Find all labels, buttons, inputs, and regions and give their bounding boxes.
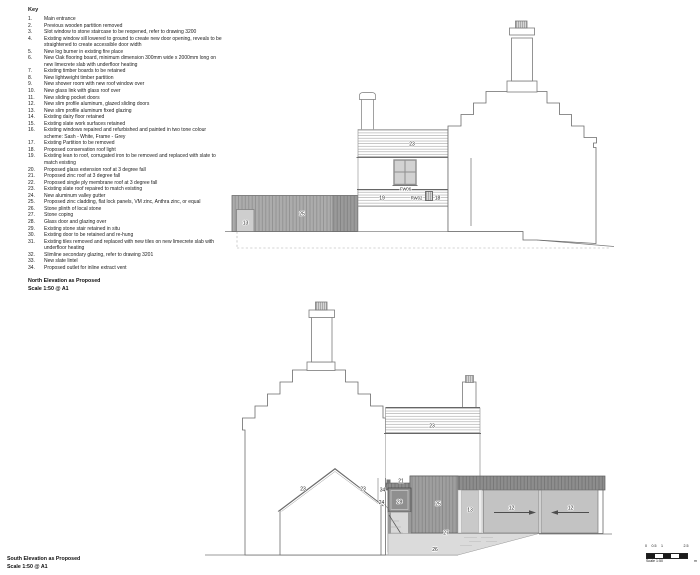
gable-chimney-pot (516, 21, 528, 28)
glazing-frame-right (479, 490, 483, 533)
label-extract-vent: 34 (380, 488, 386, 494)
gable-chimney-cap (510, 28, 535, 35)
south-elevation-drawing: 23 23 23 21 34 24 28 25 13 12 12 27 26 (200, 295, 620, 565)
label-slate-roof: 23 (409, 142, 415, 148)
north-main-house (357, 93, 451, 232)
house-wall (386, 433, 481, 478)
label-fixed-glazing: 13 (467, 508, 473, 514)
label-fixed-glazing: 13 (243, 221, 249, 227)
scale-bar-segment (679, 554, 687, 558)
slate-roof (358, 130, 448, 157)
label-zinc-roof: 21 (398, 479, 404, 485)
key-legend: Key 1. Main entrance 2. Previous wooden … (28, 7, 226, 271)
key-item-text: New Oak flooring board, minimum dimensio… (44, 55, 226, 68)
label-roof-left-slope: 23 (300, 487, 306, 493)
north-elevation-title: North Elevation as Proposed (28, 278, 100, 286)
key-item-number: 34. (28, 265, 44, 272)
south-elevation-title: South Elevation as Proposed (7, 556, 80, 564)
north-stepped-gable (448, 21, 597, 244)
scale-bar: 0 0.5 1 2.5 Scale 1:50 m (640, 544, 700, 570)
north-zinc-extension (232, 196, 358, 232)
south-elevation-title-block: South Elevation as Proposed Scale 1:50 @… (7, 556, 80, 571)
label-sliding-door-left: 12 (509, 506, 515, 512)
key-item: 4. Existing window sill lowered to groun… (28, 36, 226, 49)
scale-bar-unit: m (694, 559, 697, 563)
north-elevation-scale: Scale 1:50 @ A1 (28, 286, 100, 294)
rear-chimney-pot (466, 376, 474, 383)
label-zinc-cladding: 25 (435, 502, 441, 508)
chimney-cap (360, 93, 376, 100)
north-elevation-title-block: North Elevation as Proposed Scale 1:50 @… (28, 278, 100, 293)
conservation-rooflight (426, 192, 433, 201)
key-item-number: 16. (28, 127, 44, 140)
label-glass-door: 28 (397, 500, 403, 506)
stone-plinth (388, 534, 539, 556)
gable-chimney-stack (312, 317, 333, 362)
key-item-number: 19. (28, 153, 44, 166)
key-item: 6. New Oak flooring board, minimum dimen… (28, 55, 226, 68)
label-stone-plinth: 26 (432, 547, 438, 553)
extract-vent-outlet (387, 480, 391, 484)
scale-bar-caption: Scale 1:50 (646, 559, 663, 563)
gable-chimney-cap (309, 310, 335, 318)
key-item: 16. Existing windows repaired and refurb… (28, 127, 226, 140)
scale-tick-2-5: 2.5 (684, 544, 689, 548)
key-item-text: Existing lean to roof, corrugated iron t… (44, 153, 226, 166)
label-rooflight: 18 (435, 196, 441, 202)
key-title: Key (28, 7, 226, 13)
label-lean-to-roof: 19 (379, 196, 385, 202)
label-stone-coping: 27 (443, 531, 449, 537)
chimney-stack (362, 100, 374, 131)
key-item-number: 6. (28, 55, 44, 68)
crow-stepped-gable-wall (448, 92, 597, 244)
zinc-cladding-panel (410, 476, 458, 533)
label-valley-gutter: 24 (379, 500, 385, 506)
key-item: 34. Proposed outlet for inline extract v… (28, 265, 226, 272)
key-item-text: Existing window sill lowered to ground t… (44, 36, 226, 49)
sliding-door-right (541, 490, 598, 533)
zinc-cladding-shade (332, 196, 358, 232)
key-item-number: 31. (28, 239, 44, 252)
scale-tick-0-5: 0.5 (652, 544, 657, 548)
label-zinc-cladding: 25 (299, 212, 305, 218)
label-window-tag: FW06 (400, 187, 412, 192)
key-item: 31. Existing tiles removed and replaced … (28, 239, 226, 252)
key-item-text: Existing windows repaired and refurbishe… (44, 127, 226, 140)
scale-bar-segment (663, 554, 671, 558)
north-elevation-drawing: 25 13 23 FW06 19 RW02 18 (225, 15, 625, 255)
gable-chimney-pot (316, 302, 328, 310)
label-rainwater-tag: RW02 (411, 196, 423, 201)
gable-chimney-stack (512, 38, 533, 81)
key-items: 1. Main entrance 2. Previous wooden part… (28, 16, 226, 271)
key-item-number: 4. (28, 36, 44, 49)
south-extension (385, 476, 606, 555)
glazing-frame-left (458, 490, 462, 533)
gable-chimney-base (507, 81, 537, 92)
label-roof-right-slope: 23 (360, 487, 366, 493)
scale-bar-segment (671, 554, 679, 558)
gable-chimney-base (307, 362, 335, 371)
south-elevation-scale: Scale 1:50 @ A1 (7, 564, 80, 572)
rear-chimney-stack (463, 382, 477, 408)
drawing-sheet: Key 1. Main entrance 2. Previous wooden … (0, 0, 700, 575)
key-item-text: Proposed outlet for inline extract vent (44, 265, 226, 272)
key-item: 19. Existing lean to roof, corrugated ir… (28, 153, 226, 166)
key-item-text: Existing tiles removed and replaced with… (44, 239, 226, 252)
scale-bar-strip (646, 553, 688, 559)
scale-bar-segment (647, 554, 655, 558)
scale-tick-1: 1 (661, 544, 663, 548)
label-sliding-door-right: 12 (568, 506, 574, 512)
label-main-slate-roof: 23 (429, 424, 435, 430)
scale-bar-segment (655, 554, 663, 558)
scale-tick-0: 0 (645, 544, 647, 548)
